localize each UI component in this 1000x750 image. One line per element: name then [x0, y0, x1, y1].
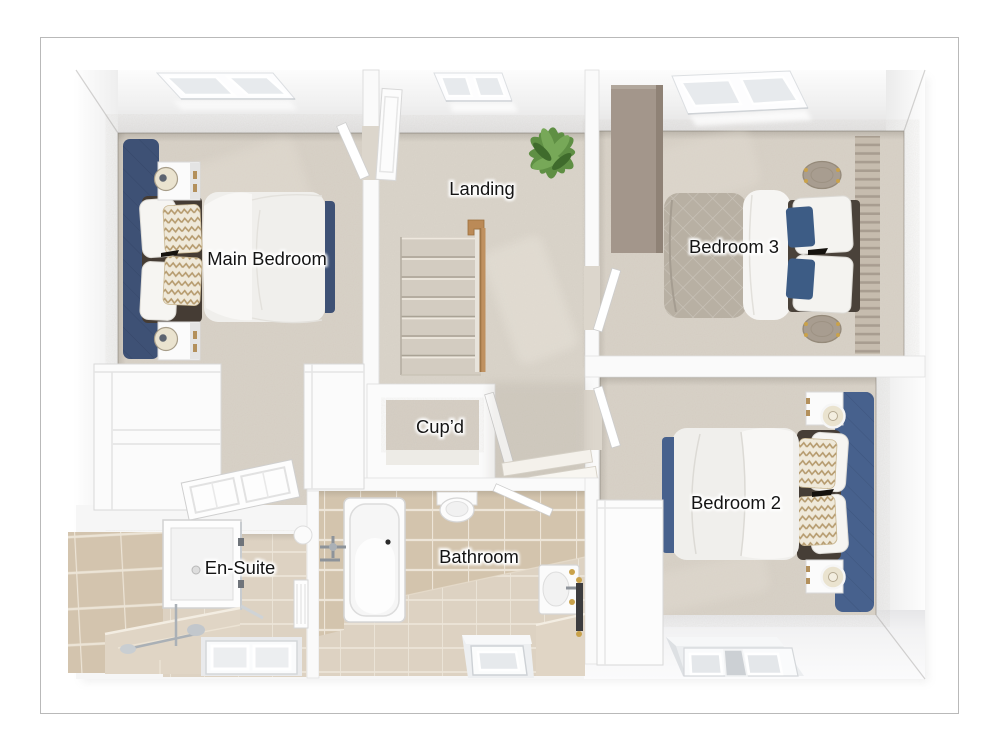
svg-text:Bedroom 2: Bedroom 2 [691, 492, 781, 513]
svg-text:Main Bedroom: Main Bedroom [207, 248, 327, 269]
svg-text:En-Suite: En-Suite [205, 557, 276, 578]
svg-text:Bathroom: Bathroom [439, 546, 519, 567]
svg-text:Landing: Landing [449, 178, 514, 199]
svg-text:Cup’d: Cup’d [416, 416, 464, 437]
svg-text:Bedroom 3: Bedroom 3 [689, 236, 779, 257]
